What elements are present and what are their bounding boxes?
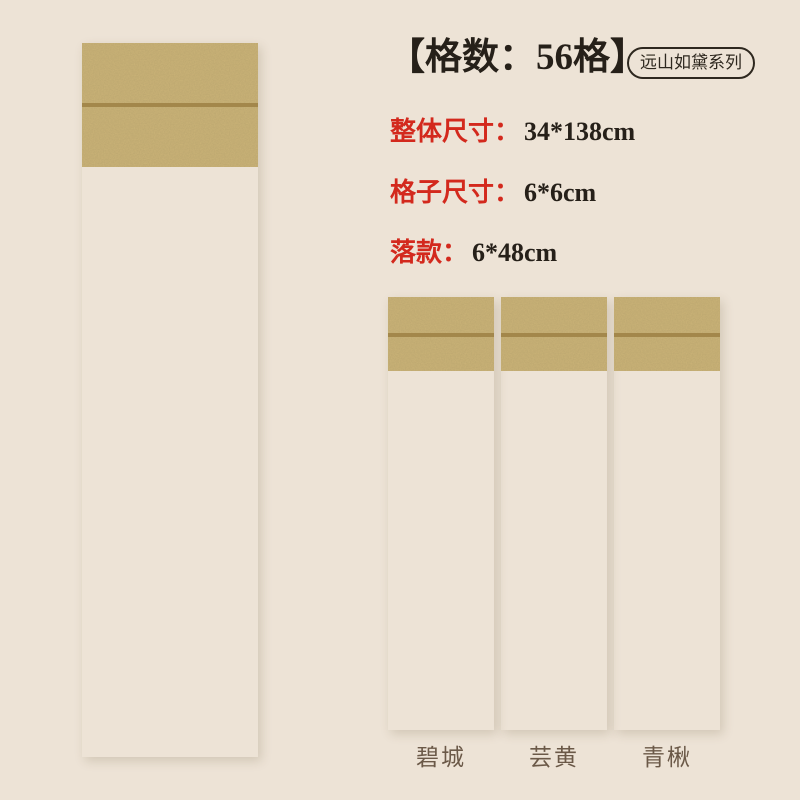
spec-cell-size: 格子尺寸：6*6cm — [390, 177, 596, 209]
spec-signature-size: 落款：6*48cm — [390, 237, 557, 269]
brocade-band-top — [614, 297, 720, 335]
texture-overlay — [614, 337, 720, 371]
brocade-band-top — [82, 43, 258, 105]
variant-qingqiu: 青楸 — [614, 297, 720, 772]
texture-overlay — [501, 337, 607, 371]
spec-label: 格子尺寸： — [390, 178, 520, 207]
texture-overlay — [614, 297, 720, 333]
variant-scroll-preview — [388, 297, 494, 730]
variant-bicheng: 碧城 — [388, 297, 494, 772]
texture-overlay — [388, 337, 494, 371]
product-showcase-page: { "header": { "title": "【格数：56格】", "seri… — [0, 0, 800, 800]
variant-yunhuang: 芸黄 — [501, 297, 607, 772]
grid-count-title: 【格数：56格】 — [388, 34, 647, 82]
spec-value: 6*6cm — [524, 178, 596, 207]
brocade-band-bottom — [614, 335, 720, 371]
color-variants-row: 碧城 芸黄 青楸 — [388, 297, 720, 772]
variant-name-label: 碧城 — [388, 738, 494, 772]
spec-value: 6*48cm — [472, 238, 557, 267]
spec-value: 34*138cm — [524, 117, 635, 146]
variant-name-label: 芸黄 — [501, 738, 607, 772]
texture-overlay — [388, 297, 494, 333]
variant-scroll-preview — [501, 297, 607, 730]
spec-overall-size: 整体尺寸：34*138cm — [390, 116, 635, 148]
texture-overlay — [82, 43, 258, 103]
brocade-band-bottom — [388, 335, 494, 371]
brocade-band-bottom — [82, 105, 258, 167]
texture-overlay — [82, 107, 258, 167]
variant-scroll-preview — [614, 297, 720, 730]
brocade-band-top — [501, 297, 607, 335]
texture-overlay — [501, 297, 607, 333]
spec-label: 整体尺寸： — [390, 117, 520, 146]
brocade-band-top — [388, 297, 494, 335]
series-badge: 远山如黛系列 — [627, 47, 755, 79]
main-scroll-preview — [82, 43, 258, 757]
brocade-band-bottom — [501, 335, 607, 371]
spec-label: 落款： — [390, 238, 468, 267]
variant-name-label: 青楸 — [614, 738, 720, 772]
